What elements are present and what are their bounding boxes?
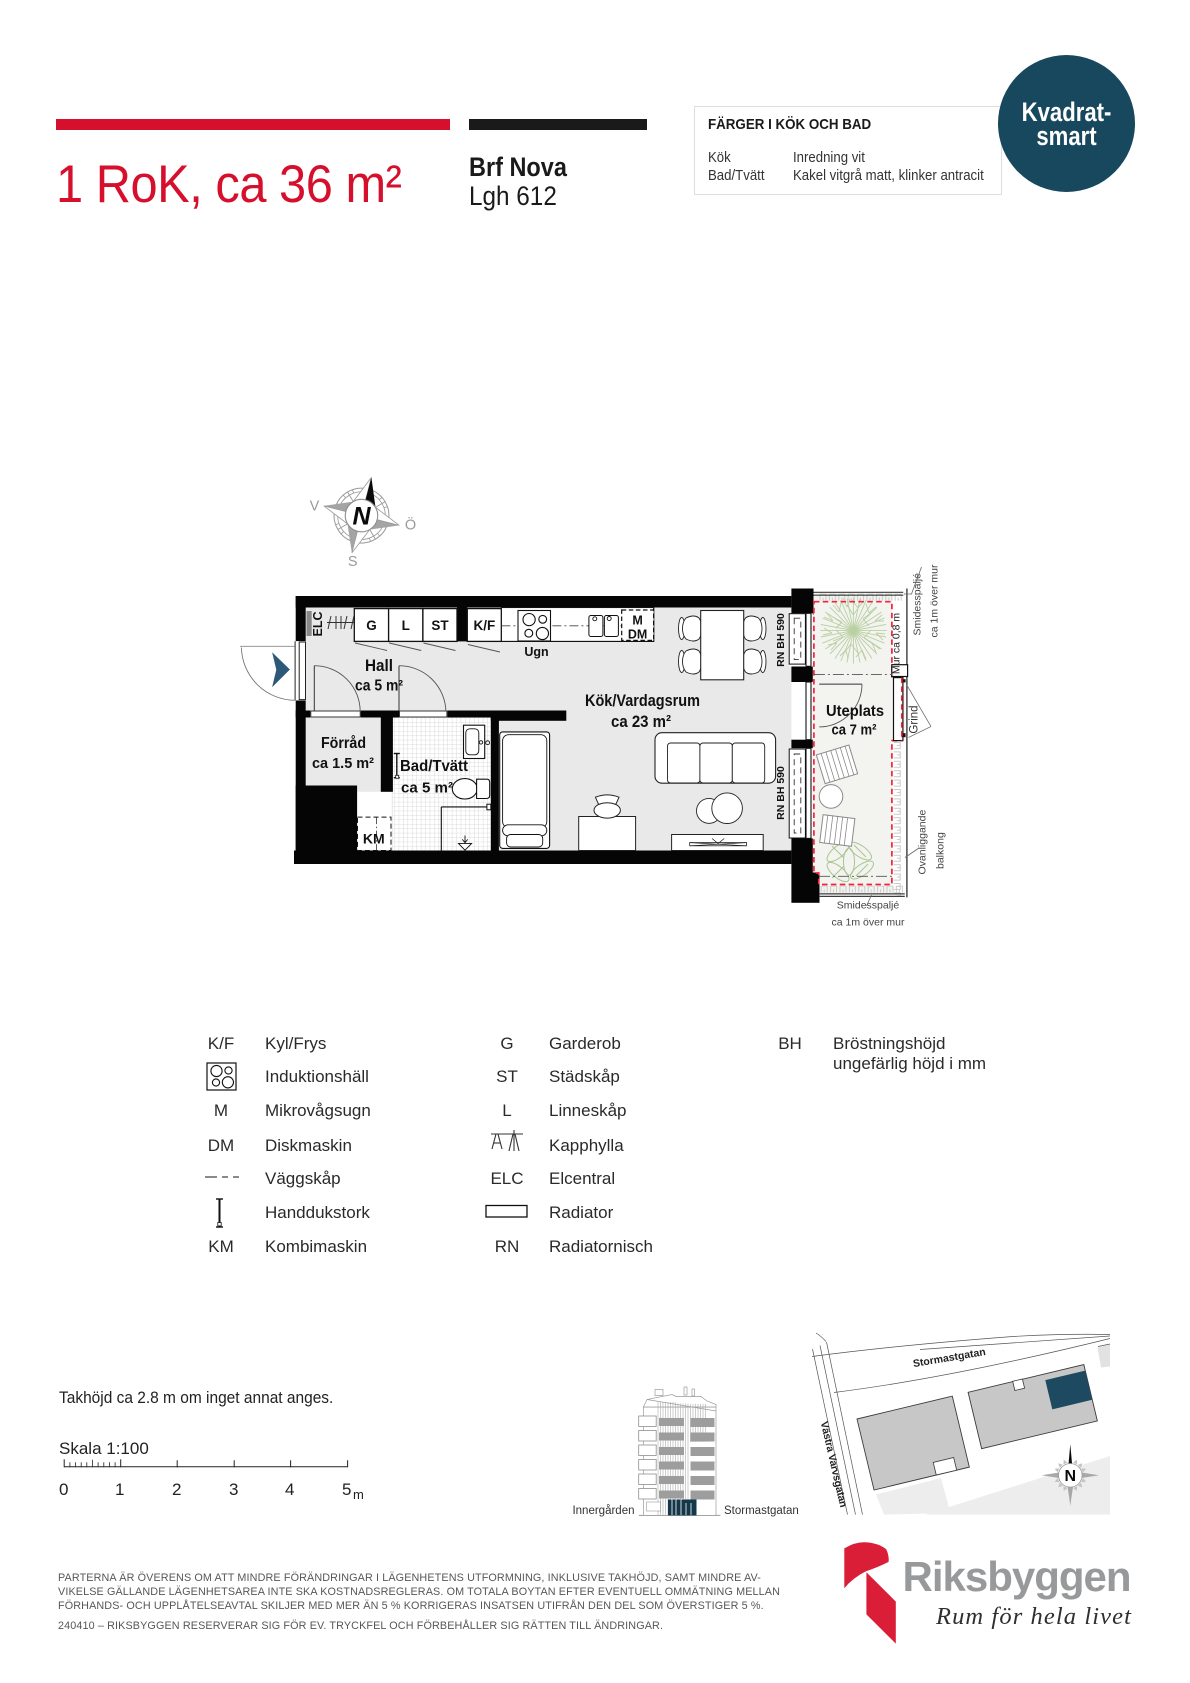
svg-text:ca 1m över mur: ca 1m över mur [929,564,941,637]
svg-text:ELC: ELC [311,612,325,637]
svg-text:K/F: K/F [474,618,496,633]
svg-text:Riksbyggen: Riksbyggen [903,1553,1131,1600]
svg-text:Uteplats: Uteplats [826,703,884,720]
svg-text:Ö: Ö [405,516,416,534]
svg-text:Stormastgatan: Stormastgatan [724,1505,799,1517]
svg-text:ca 7 m²: ca 7 m² [832,722,877,739]
svg-text:ca 23 m²: ca 23 m² [611,712,671,731]
svg-text:Ugn: Ugn [524,645,548,659]
svg-text:Bad/Tvätt: Bad/Tvätt [400,758,468,775]
svg-text:Ovanliggande: Ovanliggande [917,810,929,875]
svg-text:ca 5 m²: ca 5 m² [401,780,453,797]
svg-text:balkong: balkong [935,832,947,869]
svg-text:ca 1.5 m²: ca 1.5 m² [312,755,374,772]
svg-text:S: S [348,554,358,570]
svg-text:Grind: Grind [909,705,921,733]
svg-text:ST: ST [431,618,449,633]
svg-text:RN BH 590: RN BH 590 [775,766,787,820]
svg-text:ca 5 m²: ca 5 m² [355,678,403,695]
svg-text:V: V [310,499,320,515]
svg-text:Förråd: Förråd [321,735,366,752]
svg-text:Smidesspaljé: Smidesspaljé [912,573,924,636]
svg-text:DM: DM [628,628,647,642]
svg-text:KM: KM [363,831,385,847]
svg-text:ca 1m över mur: ca 1m över mur [832,917,905,929]
svg-text:M: M [632,614,642,628]
svg-text:N: N [352,503,371,531]
svg-text:Smidesspaljé: Smidesspaljé [837,900,900,912]
svg-text:Rum för hela livet: Rum för hela livet [935,1603,1132,1630]
svg-text:RN BH 590: RN BH 590 [775,613,787,667]
svg-text:L: L [402,618,410,633]
svg-text:N: N [1065,1468,1077,1485]
svg-text:Kök/Vardagsrum: Kök/Vardagsrum [585,691,700,710]
svg-text:Hall: Hall [365,657,393,675]
svg-text:Innergården: Innergården [572,1505,634,1517]
svg-text:Mur ca 0,8 m: Mur ca 0,8 m [891,613,903,675]
svg-text:G: G [366,618,377,633]
